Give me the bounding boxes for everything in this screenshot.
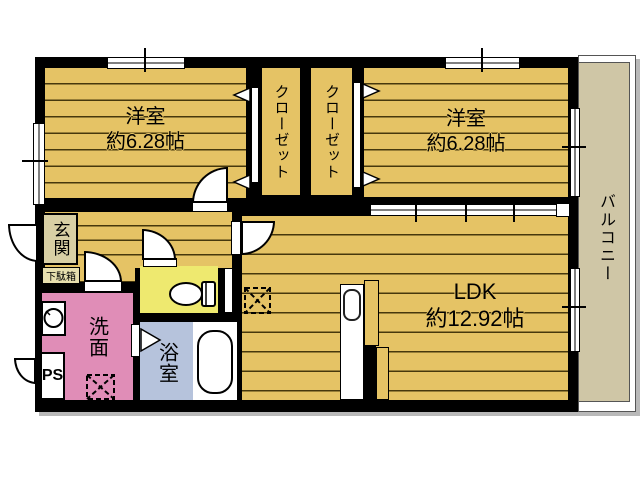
- window-tick: [22, 160, 48, 162]
- bedroom1-name: 洋室: [126, 105, 166, 130]
- balcony-text: バルコニー: [593, 193, 617, 283]
- bathtub: [197, 330, 233, 394]
- washroom-label: 洗面: [82, 302, 112, 372]
- sliding-partition-bedroom2-ldk: [370, 204, 567, 216]
- closet2-text: クローゼット: [321, 84, 342, 180]
- shoebox-label: 下駄箱: [46, 268, 76, 283]
- window-top-left: [107, 57, 185, 69]
- ldk-size: 約12.92帖: [425, 305, 524, 332]
- window-tick: [144, 48, 146, 72]
- toilet-room: [140, 266, 218, 313]
- bedroom2-name: 洋室: [446, 107, 486, 132]
- balcony-partition-tab: [556, 203, 570, 217]
- shoebox: 下駄箱: [42, 267, 80, 284]
- partition-tick: [465, 198, 467, 222]
- bedroom1-door-opening: [192, 202, 228, 212]
- entrance: 玄関: [42, 213, 78, 265]
- bedroom2-size: 約6.28帖: [427, 132, 506, 157]
- kitchen-sink: [343, 289, 361, 321]
- entrance-label: 玄関: [48, 221, 73, 257]
- closet1-text: クローゼット: [271, 84, 292, 180]
- bathroom-label: 浴室: [153, 330, 181, 396]
- bedroom1-label: 洋室 約6.28帖: [45, 105, 246, 155]
- closet2-door: [353, 82, 361, 188]
- window-left: [33, 123, 45, 205]
- toilet-side-door: [224, 268, 233, 313]
- bedroom1-size: 約6.28帖: [106, 130, 185, 155]
- bathroom-door: [131, 324, 140, 357]
- closet2-label: クローゼット: [311, 68, 352, 195]
- floor-plan: バルコニー 玄関 下駄箱 PS: [0, 0, 640, 480]
- washroom-text: 洗面: [83, 316, 112, 358]
- washroom-door-opening: [84, 281, 122, 292]
- balcony-label: バルコニー: [580, 165, 630, 310]
- partition-tick: [415, 198, 417, 222]
- pipe-space: PS: [40, 352, 65, 400]
- ps-label: PS: [42, 367, 63, 385]
- bedroom2-label: 洋室 約6.28帖: [364, 107, 568, 157]
- ldk-label: LDK 約12.92帖: [375, 278, 575, 332]
- kitchen-wall-stub: [364, 346, 376, 400]
- bathroom-text: 浴室: [153, 342, 182, 384]
- kitchen-cabinet-lower: [376, 347, 389, 400]
- partition-tick: [513, 198, 515, 222]
- ldk-door-opening: [231, 221, 241, 255]
- ps-door-arc: [14, 358, 36, 384]
- closet1-label: クローゼット: [262, 68, 300, 195]
- ldk-name: LDK: [454, 278, 497, 305]
- closet1-door: [251, 87, 259, 183]
- window-tick: [481, 48, 483, 72]
- window-balcony-bedroom2: [570, 108, 580, 197]
- entrance-door-arc: [8, 224, 38, 262]
